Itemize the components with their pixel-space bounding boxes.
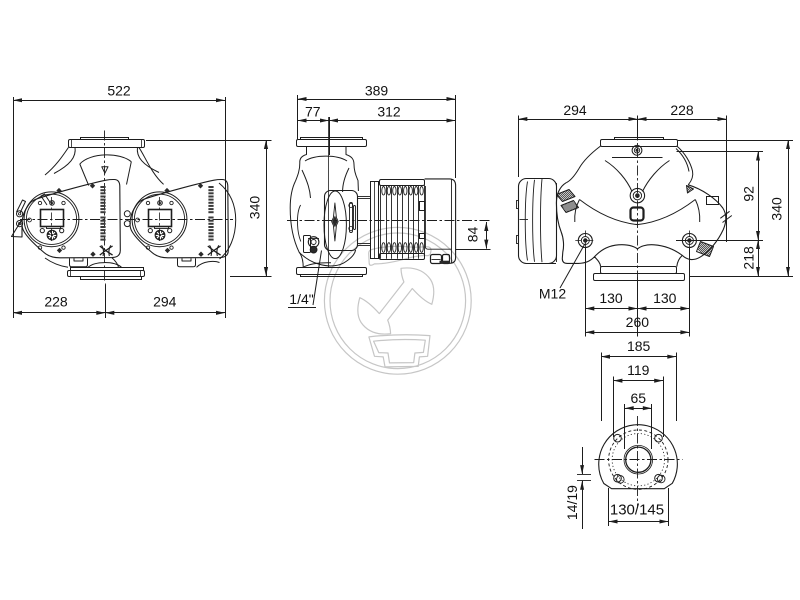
svg-text:522: 522 bbox=[107, 82, 131, 98]
svg-text:1/4": 1/4" bbox=[289, 291, 313, 307]
svg-text:14/19: 14/19 bbox=[564, 485, 580, 520]
svg-text:65: 65 bbox=[630, 390, 646, 406]
svg-text:77: 77 bbox=[305, 103, 321, 119]
svg-text:294: 294 bbox=[563, 102, 587, 118]
svg-text:119: 119 bbox=[627, 362, 650, 378]
svg-text:92: 92 bbox=[740, 186, 756, 202]
svg-text:228: 228 bbox=[670, 102, 694, 118]
svg-text:228: 228 bbox=[44, 294, 68, 310]
svg-text:312: 312 bbox=[377, 103, 401, 119]
svg-text:294: 294 bbox=[153, 294, 177, 310]
svg-text:340: 340 bbox=[247, 196, 263, 220]
svg-text:M12: M12 bbox=[539, 286, 566, 302]
svg-text:84: 84 bbox=[465, 227, 481, 243]
svg-text:389: 389 bbox=[365, 82, 389, 98]
svg-text:218: 218 bbox=[740, 246, 756, 270]
svg-text:130: 130 bbox=[653, 290, 677, 306]
svg-text:130: 130 bbox=[599, 290, 623, 306]
svg-text:340: 340 bbox=[769, 197, 785, 221]
svg-text:185: 185 bbox=[627, 338, 651, 354]
svg-text:130/145: 130/145 bbox=[610, 502, 664, 519]
